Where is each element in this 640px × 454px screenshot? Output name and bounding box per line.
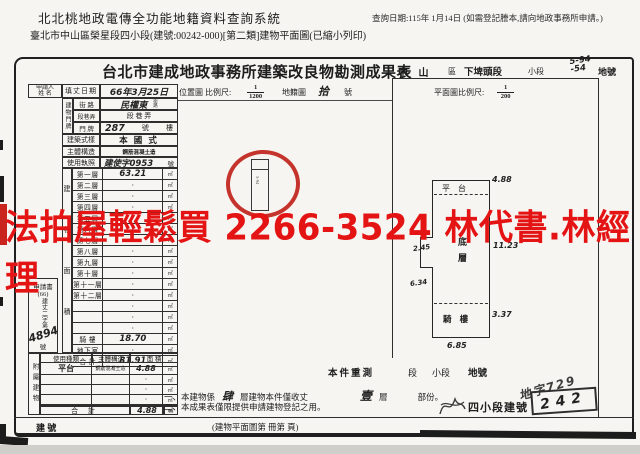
bottom-divider: [14, 417, 634, 418]
scan-artifact: [0, 176, 4, 202]
floor-label: 騎 樓: [73, 334, 103, 345]
lane-value: 段 巷 弄: [100, 110, 178, 122]
cadastral-map-no: 拾: [318, 83, 329, 99]
plan-scale-fraction: 1200: [497, 84, 514, 100]
system-title: 北北桃地政電傳全功能地籍資料查詢系統: [38, 8, 281, 27]
resurvey-label: 本件重測: [328, 365, 374, 379]
floor-area-value: 63.21: [103, 169, 163, 180]
annex-area-value: 4.88: [130, 363, 164, 375]
plan-top-border: [392, 78, 598, 79]
area-unit: ㎡: [163, 312, 177, 323]
annex-total-label: 合 計: [40, 406, 130, 415]
form-title: 台北市建成地政事務所建築改良物勘測成果表: [102, 61, 412, 82]
dim-platform: 4.88: [492, 175, 512, 184]
floor-label: [73, 312, 103, 323]
area-unit: ㎡: [163, 180, 177, 191]
floor-label: 第一層: [73, 169, 103, 180]
platform-dashed-line: [434, 194, 488, 195]
annex-table: 平台 鋼筋混凝土造 4.88 ㎡ · ㎡ · ㎡ · ㎡ · ㎡: [40, 363, 178, 406]
resurvey-subsec: 小段: [432, 366, 450, 379]
scan-artifact: [0, 297, 3, 306]
floor-label: [73, 323, 103, 334]
annex-structure: [92, 375, 129, 385]
floor-area-value: ·: [103, 180, 163, 191]
floor-area-value: ·: [103, 301, 163, 312]
building-no-stamp-box: 242: [530, 387, 598, 416]
annex-area-value: ·: [130, 395, 164, 405]
dim-bottom: 6.85: [447, 341, 467, 350]
scan-edge-band: [0, 445, 640, 454]
cadastral-map-label: 地籍圖: [282, 87, 306, 98]
district-area-suffix: 區: [448, 66, 456, 77]
table-row: · ㎡: [41, 375, 177, 385]
license-number: 建使字0953: [104, 157, 153, 168]
platform-label: 平 台: [442, 183, 469, 194]
table-row: · ㎡: [73, 301, 177, 312]
street-value-cell: 民權東 街路: [100, 98, 178, 110]
building-no-label: 建 號: [36, 421, 56, 434]
district-section: 下埤頭段: [464, 64, 502, 78]
location-scale-fraction: 11200: [247, 84, 264, 100]
query-date: 查詢日期:115年 1月14日 (如需登記謄本,請向地政事務所申請。): [372, 12, 603, 24]
annex-structure: [92, 385, 129, 395]
signature-scribble: [437, 393, 467, 419]
door-number: 287: [105, 123, 125, 134]
cadastral-map-no-suffix: 號: [344, 87, 352, 98]
plan-scale-label: 平面圖比例尺:: [434, 87, 484, 98]
annex-structure: [92, 395, 129, 405]
area-unit: ㎡: [163, 169, 177, 180]
note-2: 二、本成果表僅限提供申請建物登記之用。: [164, 401, 326, 413]
document-line: 臺北市中山區榮星段四小段(建號:00242-000)[第二類]建物平面圖(已縮小…: [30, 27, 366, 42]
street-tiny-suffix: 街路: [153, 100, 158, 109]
application-suffix: 號: [40, 341, 47, 351]
table-row: 騎 樓 18.70 ㎡: [73, 334, 177, 345]
table-row: · ㎡: [73, 323, 177, 334]
scan-artifact-thick-border: [420, 430, 636, 439]
annex-type: [41, 395, 92, 405]
floor-area-value: ·: [103, 323, 163, 334]
annex-header-area: 面 積: [130, 353, 178, 363]
watermark-text: 法拍屋輕鬆買 2266-3524 林代書.林經理: [5, 199, 640, 301]
resurvey-sec: 段: [408, 366, 417, 379]
annex-total-value: 4.88: [130, 406, 164, 415]
floor-area-value: 18.70: [103, 334, 163, 345]
district-land-no-suffix: 地號: [598, 65, 616, 78]
area-unit: ㎡: [163, 323, 177, 334]
area-unit: ㎡: [163, 334, 177, 345]
door-value-cell: 287 號 樓: [100, 122, 178, 134]
floor-label: 第二層: [73, 180, 103, 191]
structure-label: 主體構造: [62, 146, 100, 157]
area-unit: ㎡: [163, 375, 177, 385]
annex-area-value: ·: [130, 385, 164, 395]
annex-strip-label: 附屬建物: [28, 353, 40, 415]
table-row: · ㎡: [41, 385, 177, 395]
plan-book-ref: (建物平面圖第 冊第 頁): [212, 421, 298, 433]
annex-header-structure: 主體構造: [92, 353, 130, 363]
table-row: 平台 鋼筋混凝土造 4.88 ㎡: [41, 363, 177, 375]
arcade-dashed-line: [434, 303, 488, 304]
survey-date-value: 66年3月25日: [100, 84, 178, 98]
scan-artifact: [0, 140, 3, 150]
note-1-post: 層: [379, 392, 388, 402]
license-label: 使用執照: [62, 157, 100, 168]
style-label: 建築式樣: [62, 134, 100, 146]
street-label: 街 路: [73, 98, 100, 110]
district-city-area: 中 山: [398, 64, 433, 79]
application-prefix: 建丈二字第: [40, 298, 47, 328]
floor-label: [73, 301, 103, 312]
area-unit: ㎡: [163, 363, 177, 375]
table-row: 第二層 · ㎡: [73, 180, 177, 191]
table-row: · ㎡: [73, 312, 177, 323]
license-suffix: 號: [168, 158, 175, 168]
annex-header-type: 使用種類: [40, 353, 92, 363]
survey-date-label: 填丈日期: [62, 84, 100, 98]
license-value-cell: 建使字0953 號: [100, 157, 178, 168]
annex-type: 平台: [41, 363, 92, 375]
style-value: 本 國 式: [100, 134, 178, 146]
subsection-building-no-label: 四小段建號: [468, 399, 528, 415]
table-row: · ㎡: [41, 395, 177, 405]
lane-label: 段巷弄: [73, 110, 100, 122]
door-suffix: 號: [142, 123, 149, 133]
annex-type: [41, 385, 92, 395]
address-group-label: 建物門牌: [62, 98, 73, 134]
location-scale-label: 位置圖 比例尺:: [179, 87, 231, 98]
arcade-label: 騎 樓: [443, 313, 471, 325]
area-unit: ㎡: [163, 301, 177, 312]
door-label: 門 牌: [73, 122, 100, 134]
location-header-underline: [178, 100, 392, 101]
annex-structure: 鋼筋混凝土造: [92, 363, 129, 375]
applicant-label-2: 姓 名: [38, 91, 52, 98]
structure-value: 鋼筋混凝土造: [100, 146, 178, 157]
dim-arcade-right: 3.37: [492, 310, 512, 319]
note-1-handwritten-level: 壹: [360, 389, 372, 403]
resurvey-landno: 地號: [468, 365, 487, 379]
applicant-label-cell: 申請人 姓 名: [28, 84, 62, 98]
scanned-document-page: 北北桃地政電傳全功能地籍資料查詢系統 查詢日期:115年 1月14日 (如需登記…: [0, 0, 640, 454]
floor-suffix: 樓: [166, 123, 173, 133]
street-value: 民權東: [120, 98, 147, 110]
annex-area-value: ·: [130, 375, 164, 385]
building-no-handwritten: 242: [539, 389, 588, 413]
floor-area-value: ·: [103, 312, 163, 323]
annex-type: [41, 375, 92, 385]
district-subsection-label: 小段: [528, 66, 544, 77]
table-row: 第一層 63.21 ㎡: [73, 169, 177, 180]
